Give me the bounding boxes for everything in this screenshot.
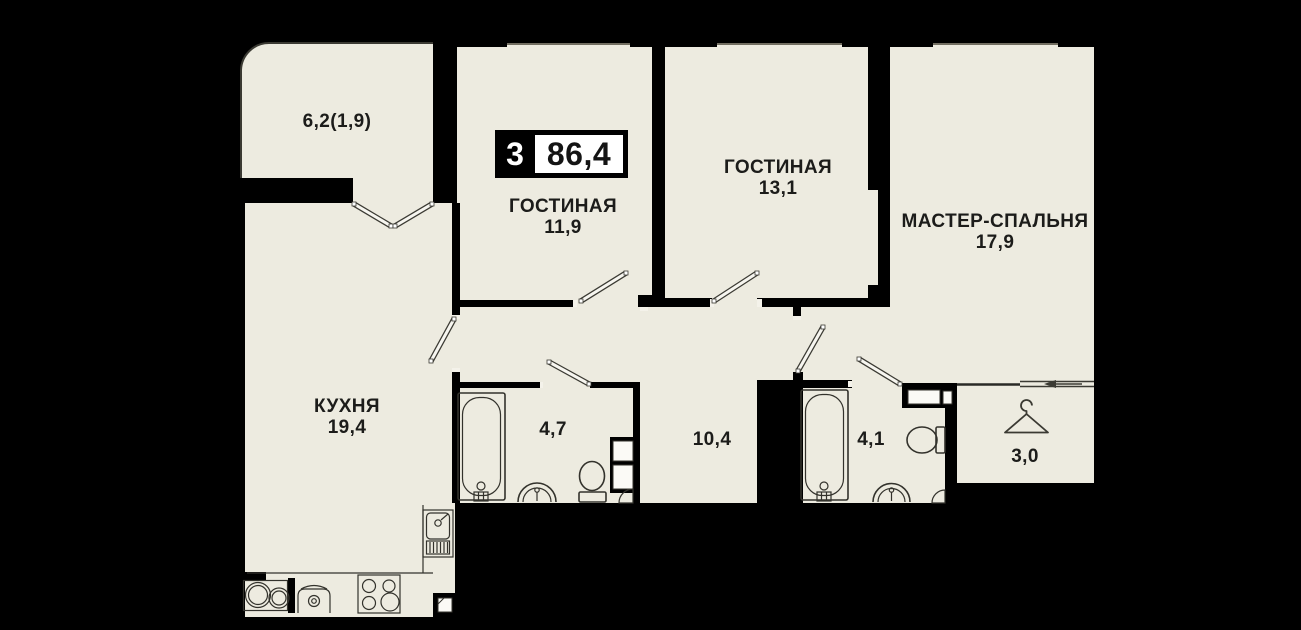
floor-plan-drawing: [0, 0, 1301, 630]
vent-shaft-icon: [908, 390, 940, 404]
room-label-balcony: 6,2(1,9): [207, 111, 467, 132]
room-label-living2: ГОСТИНАЯ 13,1: [648, 157, 908, 199]
room-count: 3: [495, 135, 535, 173]
floor-plan: 3 86,4 6,2(1,9) ГОСТИНАЯ 11,9 ГОСТИНАЯ 1…: [0, 0, 1301, 630]
room-label-master: МАСТЕР-СПАЛЬНЯ 17,9: [865, 211, 1125, 253]
room-label-living1: ГОСТИНАЯ 11,9: [433, 196, 693, 238]
apartment-badge: 3 86,4: [495, 130, 628, 178]
vent-shaft-icon: [433, 593, 457, 617]
room-label-wardrobe: 3,0: [895, 446, 1155, 467]
total-area: 86,4: [535, 135, 623, 173]
